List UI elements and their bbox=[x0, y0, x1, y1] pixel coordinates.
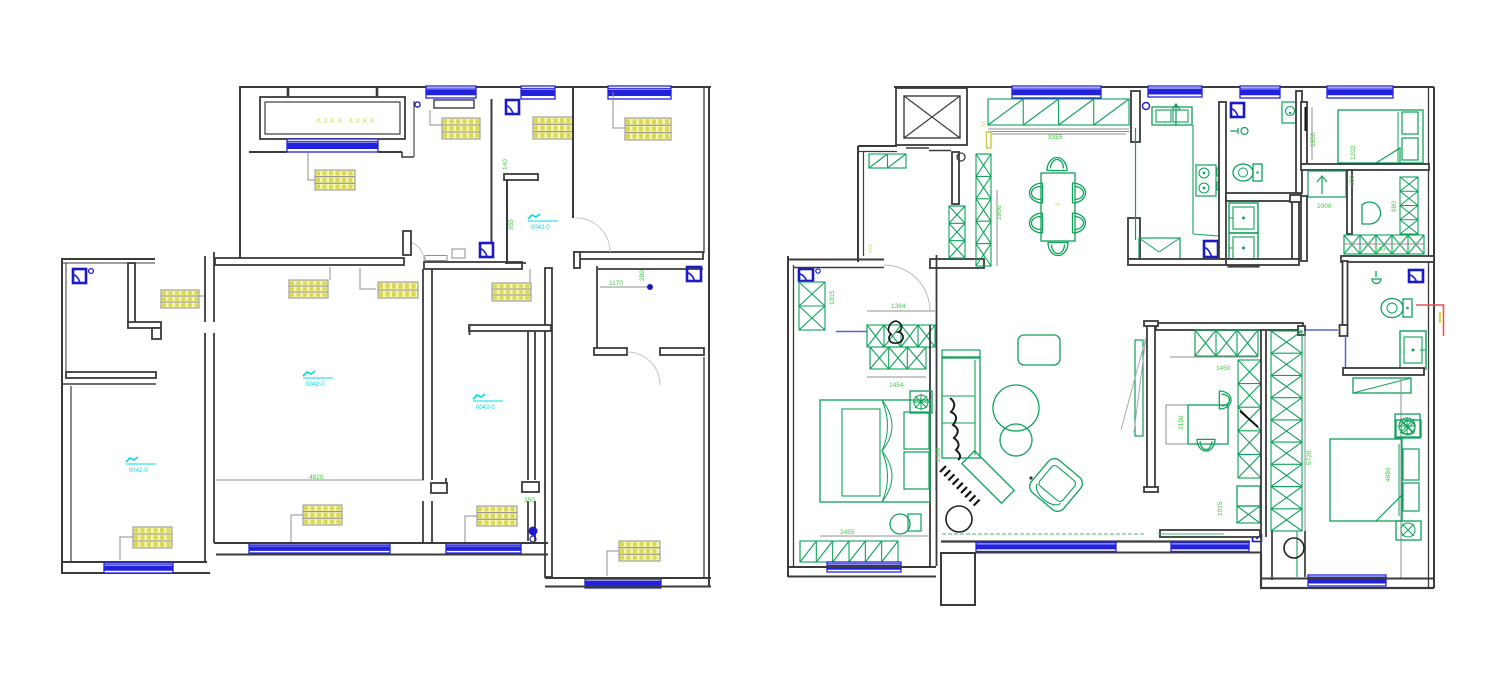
svg-text:1384: 1384 bbox=[891, 303, 906, 310]
svg-text:1000: 1000 bbox=[1317, 203, 1332, 210]
svg-text:xx: xx bbox=[981, 121, 987, 127]
svg-text:2956: 2956 bbox=[996, 205, 1003, 220]
svg-text:600: 600 bbox=[1349, 175, 1356, 186]
svg-text:1950: 1950 bbox=[1310, 132, 1317, 147]
svg-text:0042-0: 0042-0 bbox=[476, 405, 495, 411]
svg-text:140: 140 bbox=[502, 159, 509, 170]
svg-text:1202: 1202 bbox=[1350, 145, 1357, 160]
svg-text:140: 140 bbox=[1374, 246, 1385, 253]
svg-text:3355: 3355 bbox=[1048, 134, 1063, 141]
svg-text:0042-0: 0042-0 bbox=[531, 225, 550, 231]
svg-text:955: 955 bbox=[508, 219, 515, 230]
svg-text:1450: 1450 bbox=[1216, 365, 1231, 372]
svg-text:4820: 4820 bbox=[309, 474, 324, 481]
svg-text:2455: 2455 bbox=[840, 529, 855, 536]
svg-text:5720: 5720 bbox=[1306, 450, 1313, 465]
svg-text:1315: 1315 bbox=[829, 290, 836, 305]
svg-text:350: 350 bbox=[524, 497, 535, 504]
svg-text:0042-0: 0042-0 bbox=[129, 468, 148, 474]
svg-text:xx: xx bbox=[1055, 202, 1061, 208]
svg-text:1015: 1015 bbox=[1217, 501, 1224, 516]
svg-text:XXXX XXXX: XXXX XXXX bbox=[316, 116, 376, 125]
svg-text:280: 280 bbox=[639, 270, 646, 281]
svg-text:3190: 3190 bbox=[1178, 415, 1185, 430]
svg-text:xxx: xxx bbox=[868, 244, 874, 253]
svg-text:1170: 1170 bbox=[609, 280, 623, 287]
svg-text:1454: 1454 bbox=[889, 382, 904, 389]
svg-text:4880: 4880 bbox=[1385, 467, 1392, 482]
svg-text:2000: 2000 bbox=[935, 447, 942, 462]
svg-text:980: 980 bbox=[1391, 201, 1398, 212]
svg-text:0042-0: 0042-0 bbox=[306, 382, 325, 388]
